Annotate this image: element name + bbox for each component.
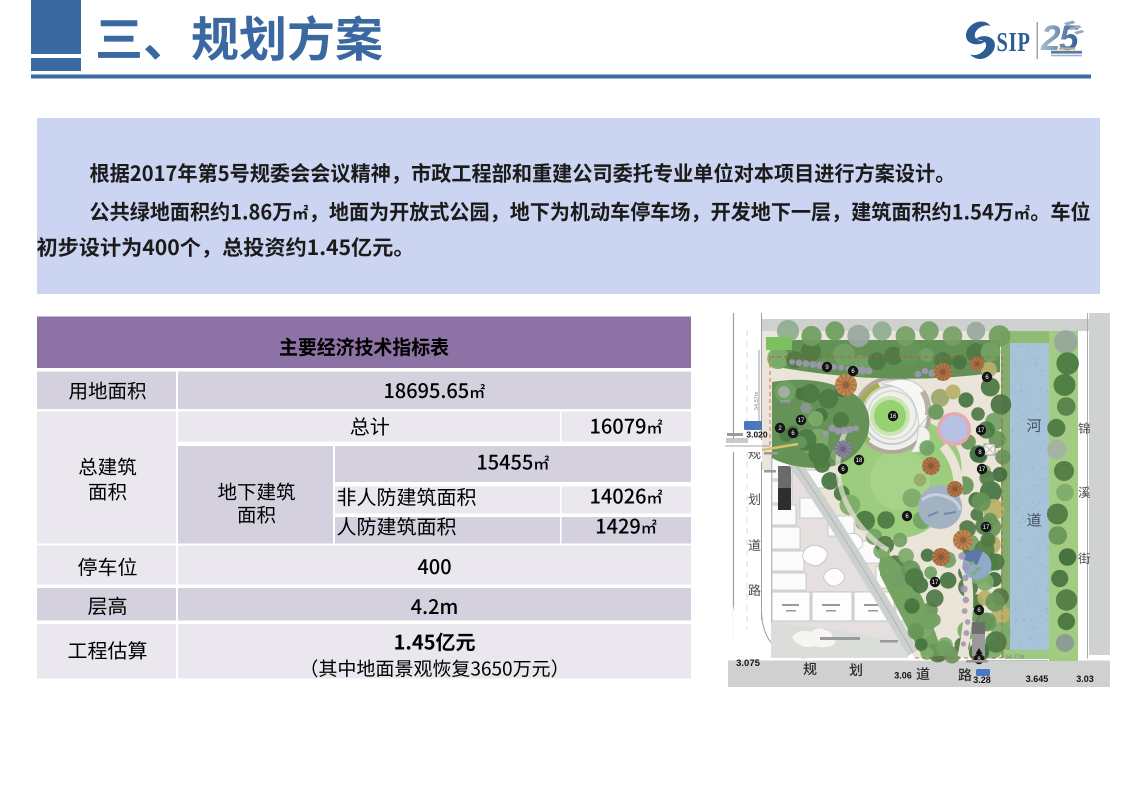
svg-text:18: 18: [856, 458, 863, 464]
svg-text:3.28: 3.28: [973, 675, 991, 685]
svg-text:17: 17: [979, 467, 986, 473]
svg-text:3.020: 3.020: [746, 430, 768, 440]
svg-text:17: 17: [983, 525, 990, 531]
svg-text:SIP: SIP: [997, 28, 1031, 57]
svg-text:17: 17: [798, 418, 805, 424]
svg-text:3.645: 3.645: [1026, 674, 1049, 684]
svg-text:3.06: 3.06: [894, 671, 912, 681]
svg-text:3.075: 3.075: [736, 658, 760, 669]
svg-text:54.77m: 54.77m: [1006, 655, 1025, 661]
svg-text:17: 17: [978, 428, 985, 434]
svg-text:17: 17: [932, 580, 939, 586]
svg-text:54.57m: 54.57m: [754, 391, 760, 410]
svg-text:3.03: 3.03: [1076, 674, 1094, 684]
svg-text:16: 16: [890, 414, 897, 420]
